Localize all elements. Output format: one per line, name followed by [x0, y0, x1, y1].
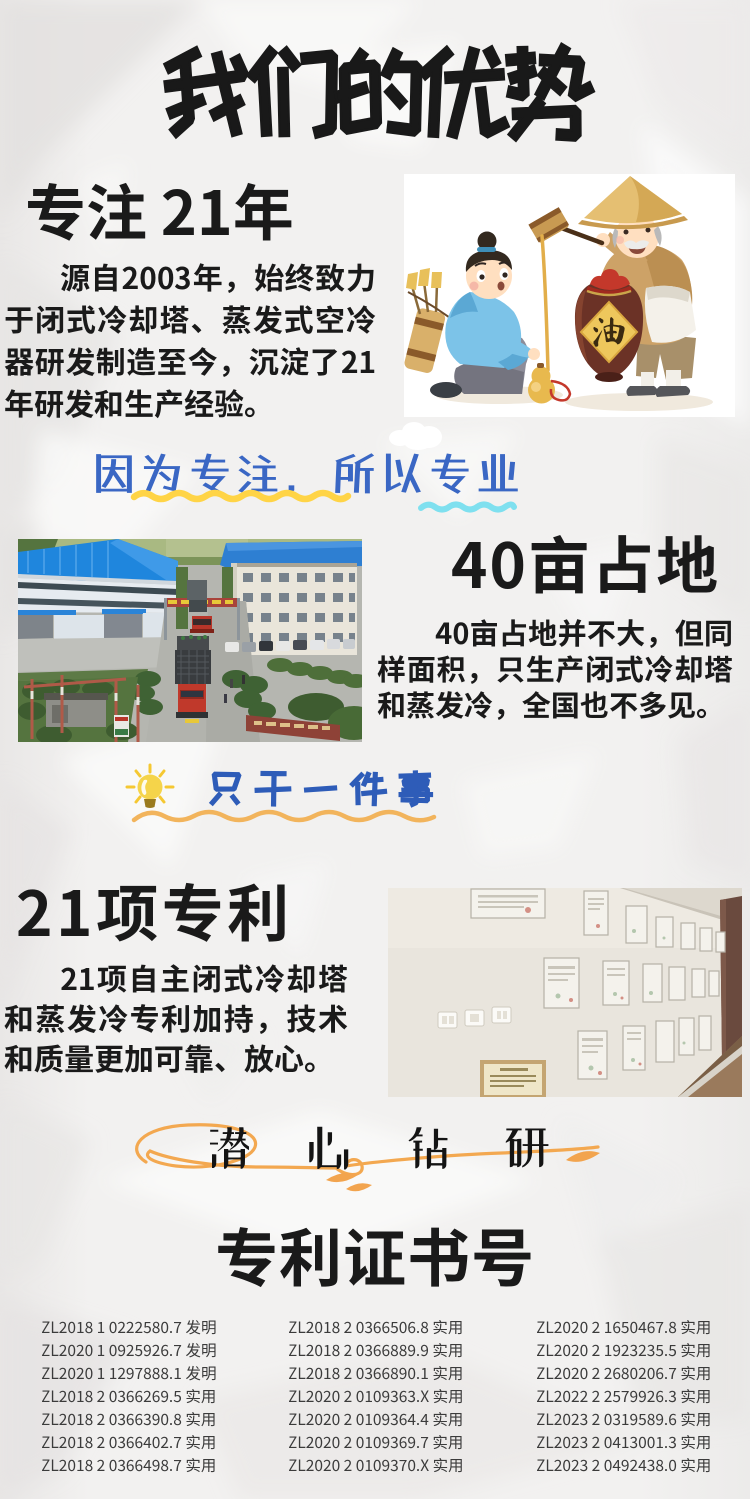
- svg-text:油: 油: [591, 313, 628, 350]
